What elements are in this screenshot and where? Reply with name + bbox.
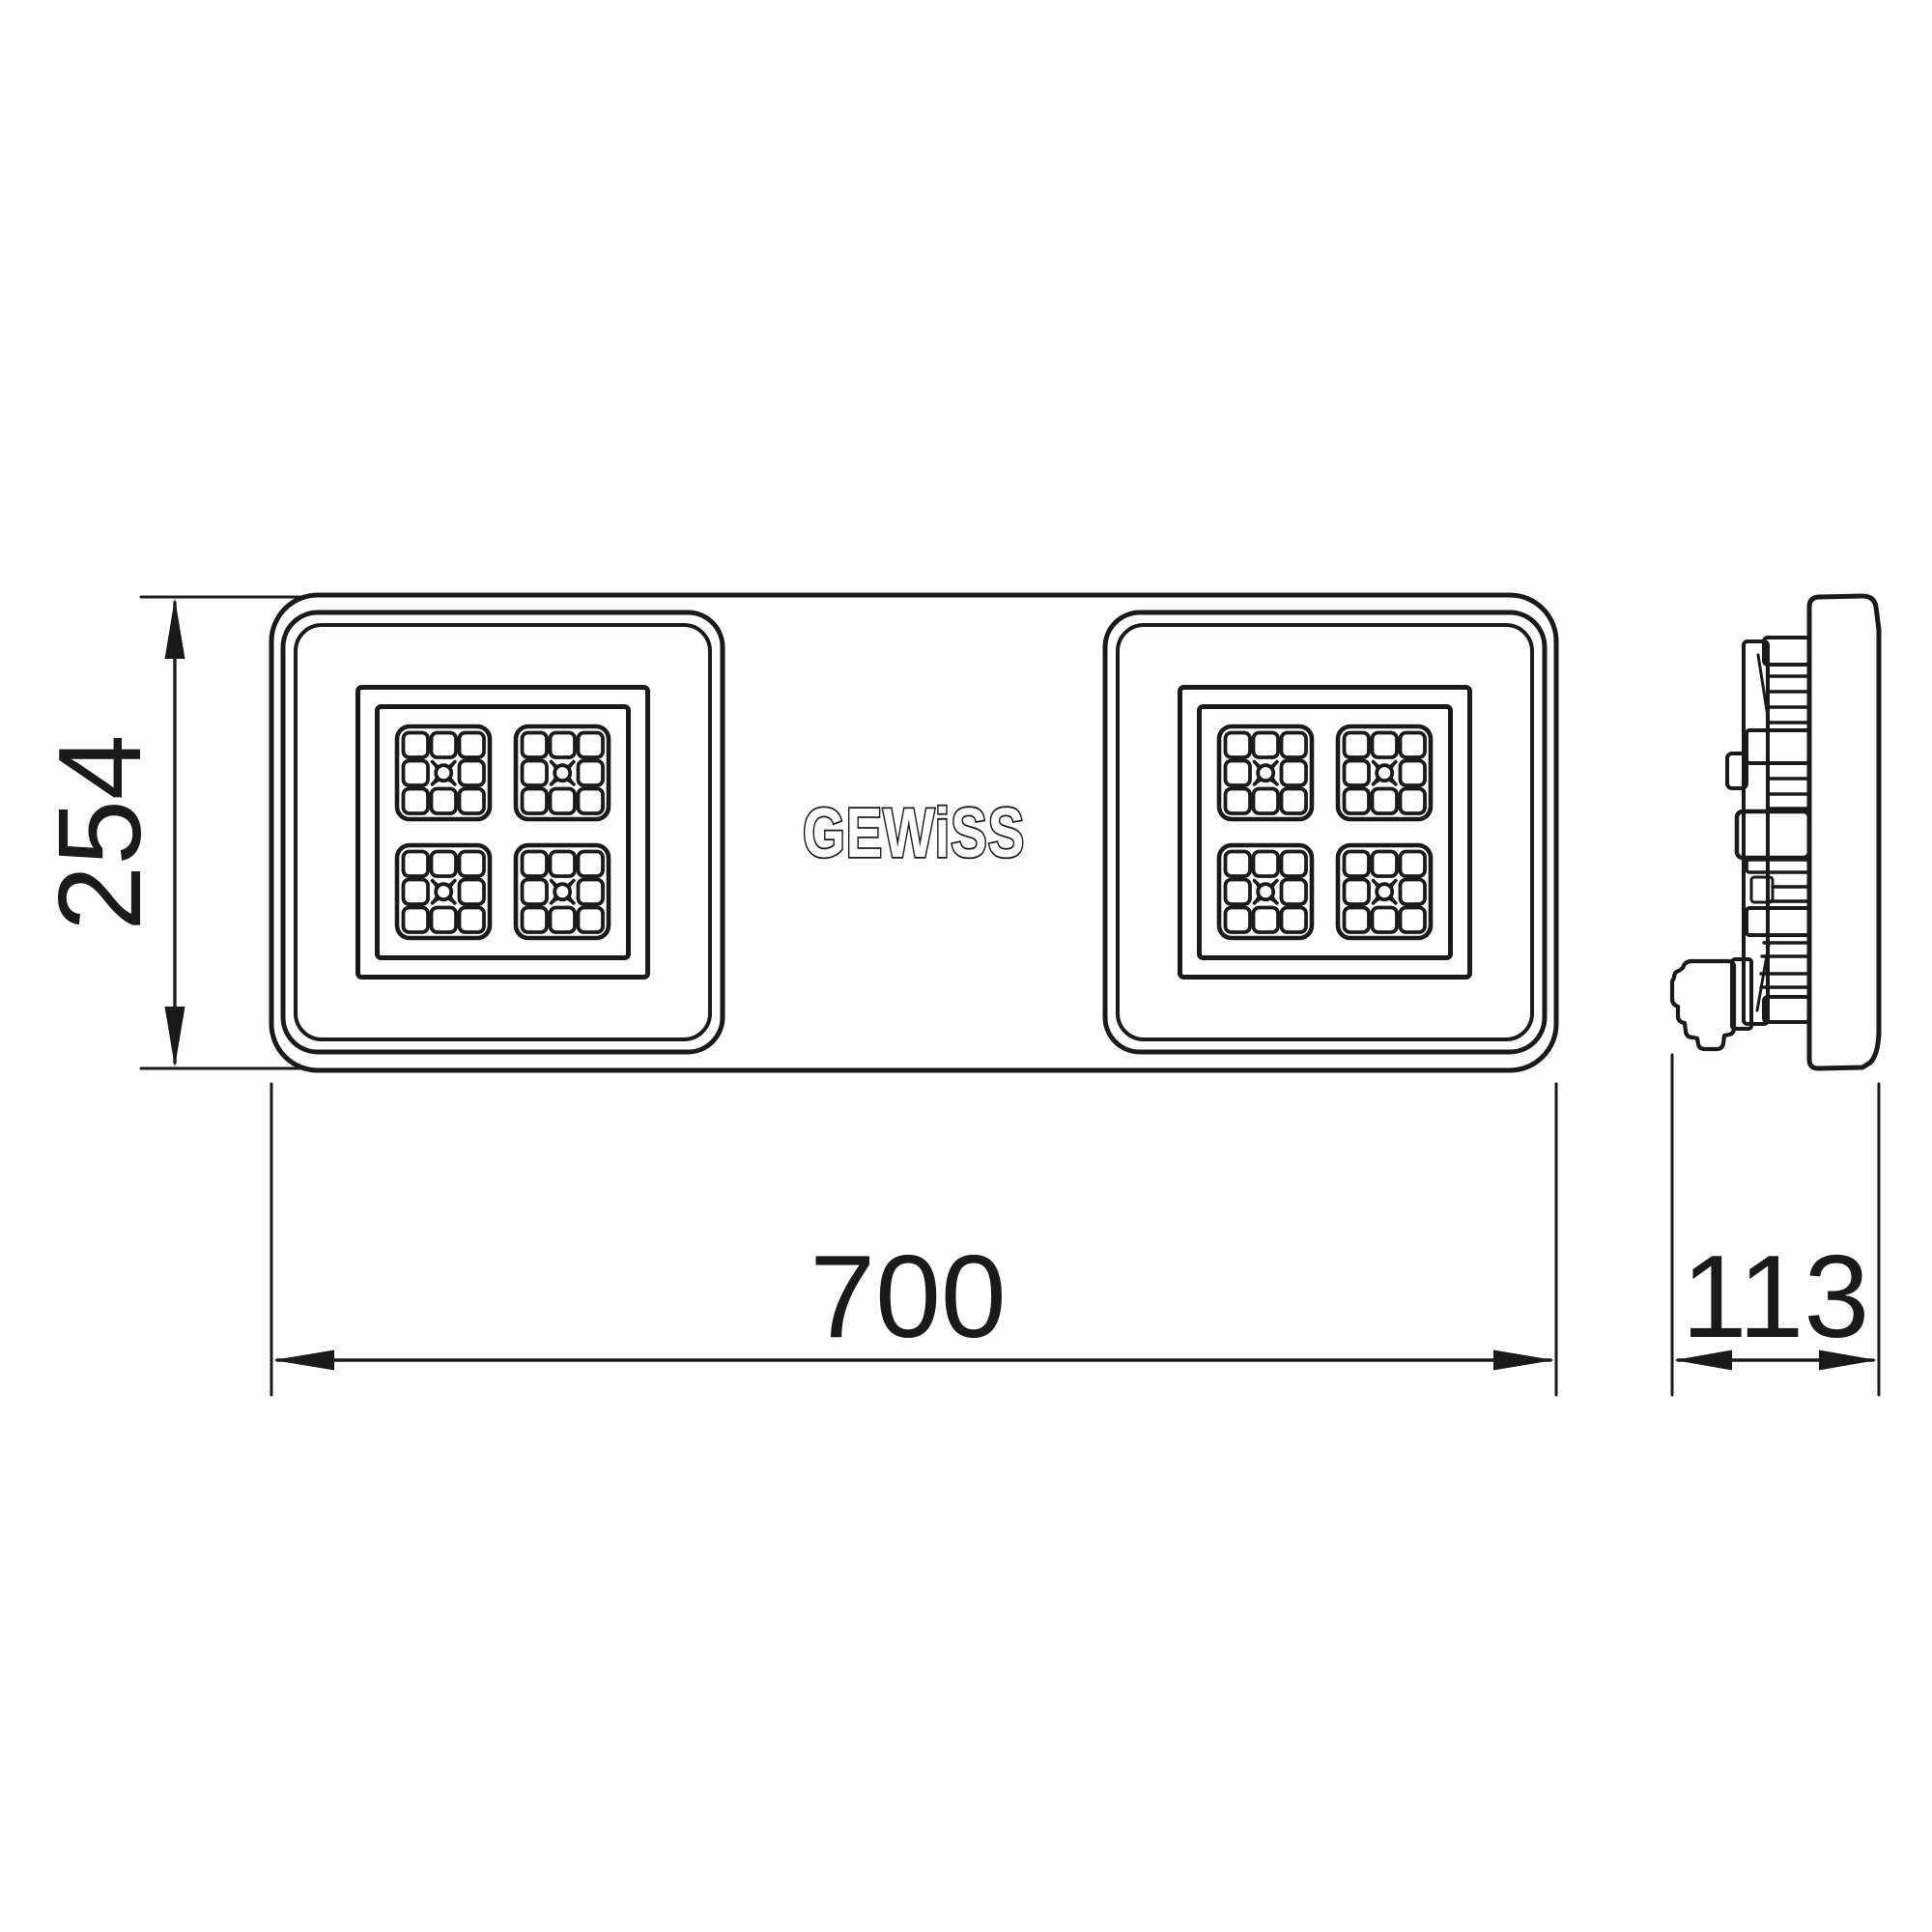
dimension-depth: 113 xyxy=(1672,1055,1879,1395)
front-view: GEWiSS xyxy=(271,595,1556,1070)
heatsink-slab xyxy=(1747,908,1809,935)
led-module-right xyxy=(1105,612,1545,1052)
side-view xyxy=(1672,596,1879,1068)
arrowhead-left xyxy=(273,1350,334,1371)
arrowhead-up xyxy=(165,598,185,659)
heatsink-bottom-cap xyxy=(1764,997,1809,1022)
led-module-left xyxy=(283,612,723,1052)
dimension-depth-value: 113 xyxy=(1682,1231,1870,1362)
heatsink-slab xyxy=(1747,860,1809,872)
arrowhead-down xyxy=(165,1007,185,1067)
dimension-width-value: 700 xyxy=(810,1231,1007,1362)
dimension-height: 254 xyxy=(34,597,301,1068)
heatsink-slab xyxy=(1747,730,1809,763)
cable-gland xyxy=(1672,961,1734,1049)
floodlight-dimension-drawing: GEWiSS xyxy=(0,0,1932,1932)
arrowhead-right xyxy=(1493,1350,1554,1371)
heatsink-top-cap xyxy=(1764,638,1809,665)
gewiss-logo: GEWiSS xyxy=(803,795,1025,872)
dimension-width: 700 xyxy=(271,1084,1556,1395)
dimension-height-value: 254 xyxy=(34,734,165,931)
drawing-canvas: GEWiSS xyxy=(0,0,1932,1932)
mounting-boss xyxy=(1737,811,1809,858)
side-front-panel xyxy=(1809,596,1879,1068)
